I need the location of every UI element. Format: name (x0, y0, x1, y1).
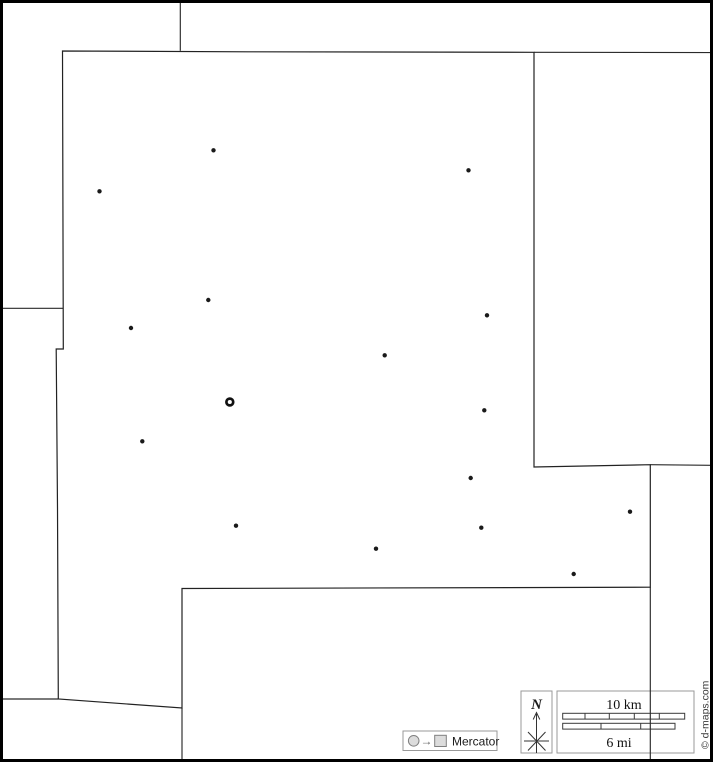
scale-bar-outline (563, 723, 675, 729)
north-label: N (530, 697, 543, 713)
map-square-icon (435, 735, 447, 746)
globe-circle-icon (408, 736, 419, 747)
town-dot (97, 189, 101, 193)
county-seat-marker (226, 399, 233, 406)
scale-bar-box: 10 km 6 mi (557, 691, 694, 753)
scale-bar-outline (563, 713, 685, 719)
town-dot (572, 572, 576, 576)
arrow-right-icon: → (421, 734, 433, 748)
border-line (650, 465, 711, 466)
town-dot (469, 476, 473, 480)
scale-km-label: 10 km (606, 698, 642, 713)
town-dot (482, 408, 486, 412)
town-dot (466, 168, 470, 172)
neighbor-borders (2, 2, 711, 760)
projection-label: Mercator (452, 735, 499, 749)
town-dot (140, 439, 144, 443)
town-dot (129, 326, 133, 330)
scale-mi-label: 6 mi (606, 736, 631, 751)
map-canvas: N 10 km 6 mi → Mercator © d-ma (0, 0, 713, 762)
town-dot (383, 353, 387, 357)
town-dot (485, 313, 489, 317)
scale-km-bar (563, 713, 685, 719)
north-arrow-box: N (521, 691, 552, 753)
town-dot (628, 510, 632, 514)
projection-legend-box: → Mercator (403, 731, 499, 751)
county-border (56, 51, 650, 708)
town-dot (374, 547, 378, 551)
town-dot (206, 298, 210, 302)
copyright-credit: © d-maps.com (700, 680, 712, 749)
image-frame (2, 2, 712, 761)
town-dot (479, 526, 483, 530)
scale-mi-bar (563, 723, 675, 729)
town-dots (97, 148, 632, 576)
town-dot (234, 524, 238, 528)
town-dot (211, 148, 215, 152)
map-page: N 10 km 6 mi → Mercator © d-ma (0, 0, 713, 762)
